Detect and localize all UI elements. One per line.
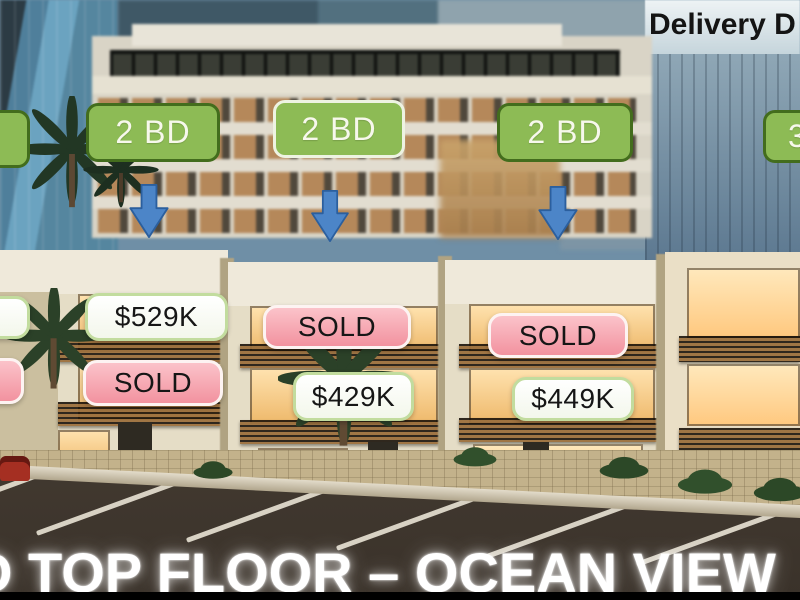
shrub-icon (676, 462, 734, 504)
down-arrow-icon (128, 184, 170, 243)
toy-car (0, 456, 30, 481)
parapet-band (92, 76, 652, 94)
banner-text: D TOP FLOOR – OCEAN VIEW (0, 540, 776, 600)
unit-type-badge-3: 2 BD (497, 103, 633, 162)
unit-type-badge-1: 2 BD (86, 103, 220, 162)
shrub-icon (452, 440, 498, 476)
sold-pill: SOLD (83, 360, 223, 406)
fascia-band (445, 260, 665, 304)
sold-text: SOLD (114, 367, 192, 399)
balcony-railing (459, 418, 657, 442)
sold-pill: SOLD (263, 305, 411, 349)
shrub-icon (752, 470, 800, 512)
unit-type-text: 3 (788, 118, 800, 155)
fascia-band (228, 262, 445, 306)
shrub-icon (192, 455, 234, 487)
unit-type-badge-partial-right: 3 (763, 110, 800, 163)
unit-type-badge-partial-left (0, 110, 30, 168)
lit-window (687, 268, 800, 338)
down-arrow-icon (309, 190, 351, 247)
parking-line (36, 477, 186, 536)
price-pill-partial-left (0, 296, 30, 339)
down-arrow-icon (537, 186, 579, 245)
sold-pill: SOLD (488, 313, 628, 358)
price-text: $449K (531, 383, 614, 415)
price-pill: $429K (293, 372, 414, 421)
shrub-icon (598, 450, 650, 488)
price-text: $429K (312, 381, 395, 413)
sold-text: SOLD (298, 311, 376, 343)
unit-type-text: 2 BD (115, 114, 190, 151)
parking-line (0, 473, 38, 532)
sold-pill-partial-left (0, 358, 24, 404)
price-pill: $449K (512, 377, 634, 421)
sold-text: SOLD (519, 320, 597, 352)
lit-window (687, 364, 800, 426)
balcony-railing (679, 336, 800, 362)
sales-slide: Delivery D 2 BD 2 BD 2 BD 3 $529K SOLD S… (0, 0, 800, 600)
unit-type-badge-2: 2 BD (273, 100, 405, 158)
penthouse-level (132, 24, 562, 46)
delivery-date-label: Delivery D (649, 8, 796, 42)
unit-type-text: 2 BD (301, 111, 376, 148)
unit-type-text: 2 BD (527, 114, 602, 151)
price-pill: $529K (85, 293, 228, 341)
price-text: $529K (115, 301, 198, 333)
bottom-black-bar (0, 592, 800, 600)
